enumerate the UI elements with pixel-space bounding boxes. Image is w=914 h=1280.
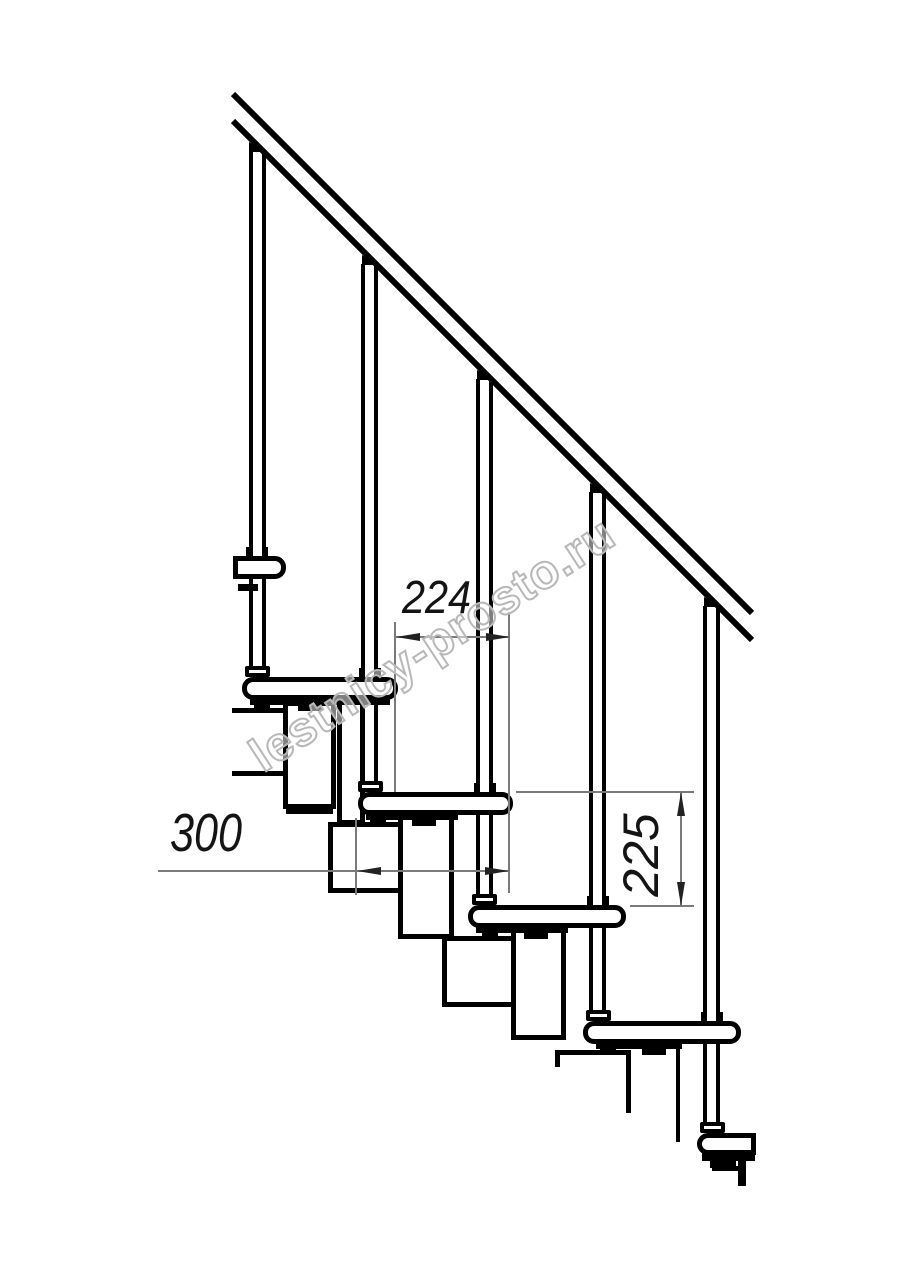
baluster-4-pass-left [587, 896, 593, 905]
module-box-2 [328, 822, 407, 893]
tread-6-mount-nub [710, 1161, 736, 1168]
tread-1 [233, 556, 286, 579]
tread-2-mount-nub-a [254, 705, 270, 711]
baluster-2-flange [358, 781, 383, 792]
baluster-5 [703, 606, 720, 1133]
baluster-5-pass-left [701, 1012, 707, 1021]
baluster-1 [249, 151, 266, 677]
module-box-4-right-edge [626, 1050, 631, 1113]
dim-300-label: 300 [170, 806, 242, 860]
tread-3 [358, 792, 513, 815]
tread-4-mount-nub-b [524, 933, 548, 939]
drawing-canvas: 224 300 225 lestnicy-prosto.ru [0, 0, 914, 1280]
baluster-5-rail-wedge [704, 597, 720, 607]
module-box-4-top-edge [555, 1050, 631, 1055]
dim-300-arrow-left-icon [357, 867, 381, 875]
dim-225-arrow-up-icon [677, 792, 685, 816]
tread-4 [468, 905, 626, 928]
dim-300-line [158, 870, 509, 872]
tread-3-mount-nub-b [412, 820, 436, 826]
tread-4-mount-strip [476, 926, 568, 933]
baluster-1-pass-left [246, 547, 252, 556]
module-base-plate [286, 804, 333, 814]
baluster-3-flange [472, 894, 497, 905]
tread-5-mount-nub-b [642, 1049, 666, 1055]
dim-300-extension-left [355, 818, 357, 895]
baluster-4-pass-right [603, 896, 609, 905]
module-strut-b [398, 814, 454, 939]
baluster-1-flange [245, 666, 270, 677]
baluster-5-flange [700, 1122, 725, 1133]
tread-3-mount-strip [366, 813, 458, 820]
tread-5-mount-nub-a [600, 1049, 616, 1055]
baluster-3-pass-right [490, 783, 496, 792]
baluster-4-flange [586, 1010, 611, 1021]
dim-225-arrow-down-icon [677, 882, 685, 906]
baluster-3-pass-left [474, 783, 480, 792]
module-box-4-left-stub [555, 1050, 560, 1067]
baluster-1-pass-right [262, 547, 268, 556]
tread-4-mount-nub-a [482, 933, 498, 939]
module-box-3 [442, 936, 520, 1007]
baluster-4-rail-wedge [590, 483, 606, 493]
dim-300-arrow-right-icon [485, 867, 509, 875]
dim-225-extension-top [516, 791, 694, 793]
dim-224-extension-right [508, 612, 510, 893]
watermark: lestnicy-prosto.ru [240, 506, 625, 783]
baluster-5-pass-right [717, 1012, 723, 1021]
tread-5-mount-strip [596, 1041, 682, 1049]
tread-3-mount-nub-a [370, 820, 386, 826]
tread-6-mount-strip [702, 1153, 755, 1161]
floor-step-vertical [738, 1158, 746, 1186]
tread-6 [697, 1133, 756, 1155]
tread-1-mount-nub [238, 584, 258, 591]
module-strut-c [511, 927, 566, 1040]
dim-225-label: 225 [616, 800, 666, 910]
module-strut-d-edge [676, 1044, 680, 1142]
